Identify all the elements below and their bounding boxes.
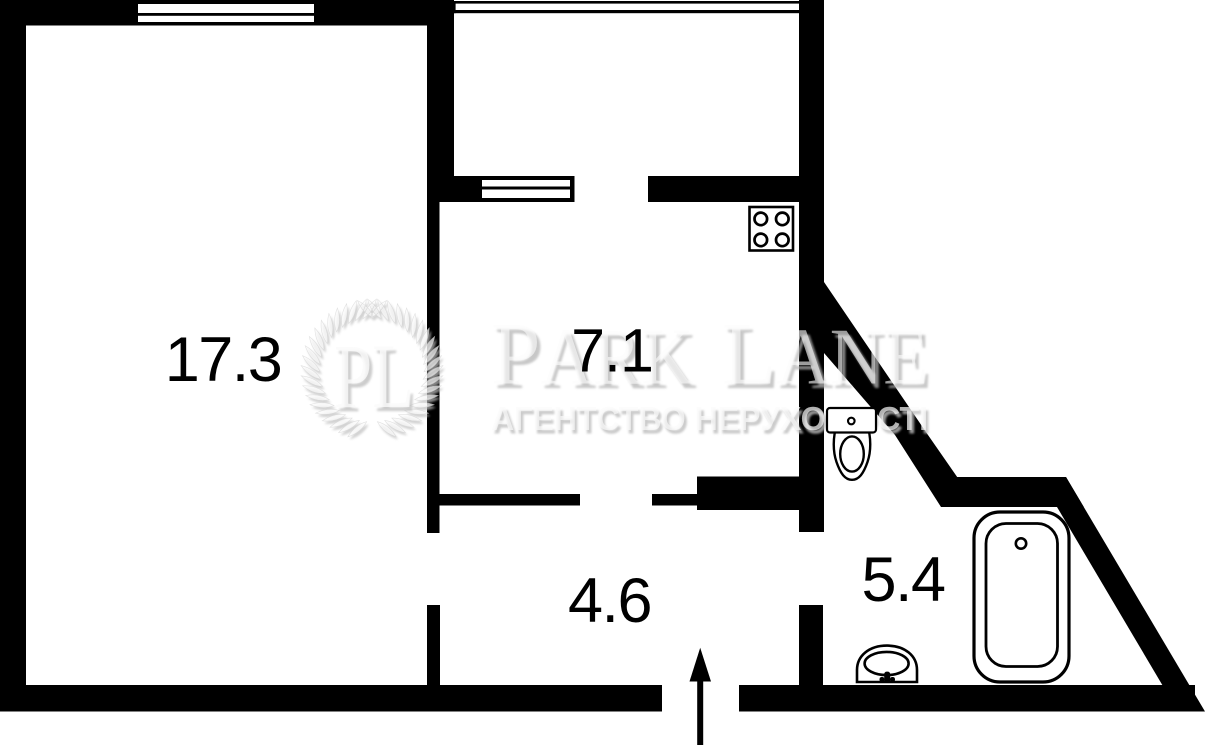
svg-text:PL: PL <box>334 325 414 427</box>
svg-text:L: L <box>722 305 776 403</box>
svg-text:7.1: 7.1 <box>571 317 653 385</box>
svg-text:P: P <box>491 305 541 403</box>
svg-text:4.6: 4.6 <box>568 566 651 636</box>
svg-text:5.4: 5.4 <box>861 545 945 615</box>
svg-text:ANE: ANE <box>776 313 928 401</box>
svg-text:17.3: 17.3 <box>165 325 282 395</box>
